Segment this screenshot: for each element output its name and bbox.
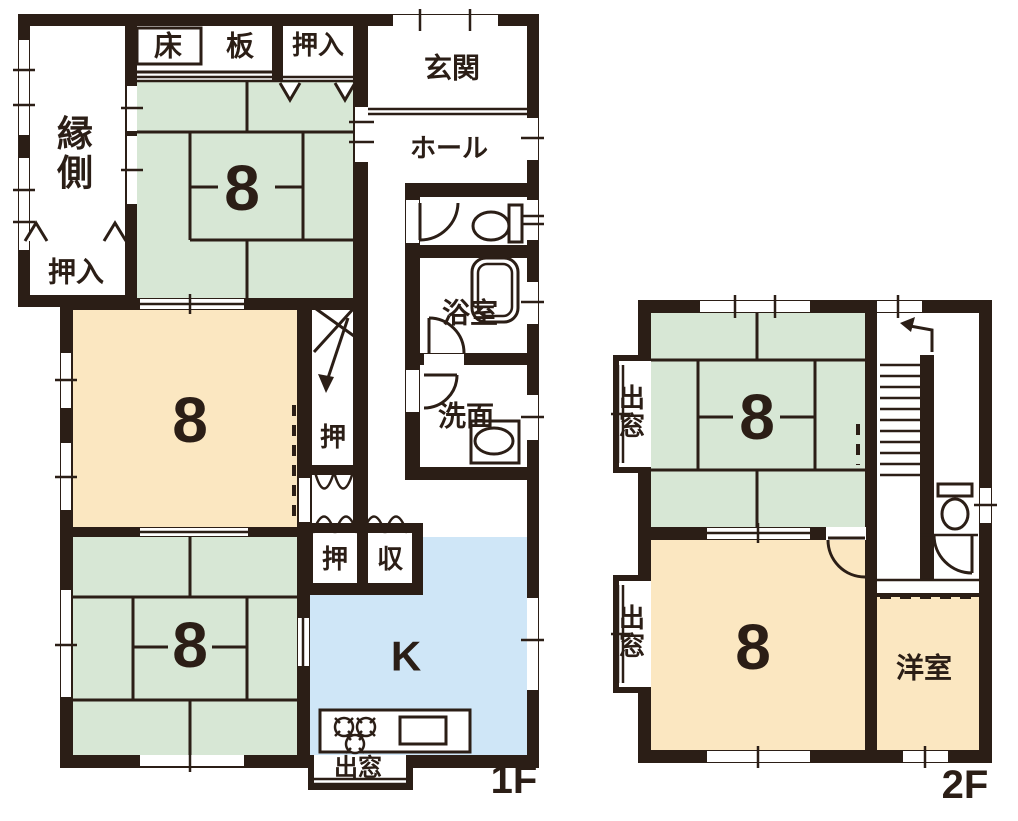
label-bay-window-1f: 出窓 — [334, 754, 382, 782]
label-bay-window-upper: 出窓 — [619, 383, 645, 441]
label-hall: ホール — [410, 133, 488, 163]
label-floor-2f: 2F — [942, 763, 989, 807]
floor-2f-plan: 8 8 出窓 出窓 洋室 2F — [611, 295, 997, 807]
label-center-room-size: 8 — [172, 384, 208, 456]
label-kitchen: K — [391, 633, 421, 680]
label-engawa: 縁側 — [56, 113, 93, 193]
label-washroom: 洗面 — [438, 401, 494, 432]
label-ita: 板 — [226, 31, 254, 62]
floor-1f-plan: 縁側 床 板 押入 押入 玄関 ホール 浴室 洗面 8 8 8 押 押 収 K … — [13, 9, 544, 802]
floor-plan-canvas: 縁側 床 板 押入 押入 玄関 ホール 浴室 洗面 8 8 8 押 押 収 K … — [0, 0, 1018, 821]
label-tatami-2f-size: 8 — [739, 381, 775, 453]
label-oshiire-west: 押入 — [48, 256, 104, 288]
label-floor-1f: 1F — [491, 758, 538, 802]
label-toko: 床 — [154, 30, 182, 62]
floor-plan-drawing: 縁側 床 板 押入 押入 玄関 ホール 浴室 洗面 8 8 8 押 押 収 K … — [0, 0, 1018, 821]
stairs-closet-column — [312, 300, 355, 533]
kitchen-counter — [320, 710, 470, 753]
label-tatami-north-size: 8 — [224, 152, 260, 224]
label-closet-small: 押 — [322, 544, 348, 574]
label-bedroom-2f-size: 8 — [735, 611, 771, 683]
label-oshiire-top: 押入 — [292, 30, 344, 60]
label-bath: 浴室 — [442, 297, 498, 329]
label-western-room: 洋室 — [896, 652, 952, 684]
label-genkan: 玄関 — [424, 52, 480, 84]
label-storage-small: 収 — [377, 544, 404, 574]
label-closet-mid: 押 — [320, 422, 346, 452]
label-tatami-south-size: 8 — [172, 609, 208, 681]
label-bay-window-lower: 出窓 — [619, 603, 645, 661]
